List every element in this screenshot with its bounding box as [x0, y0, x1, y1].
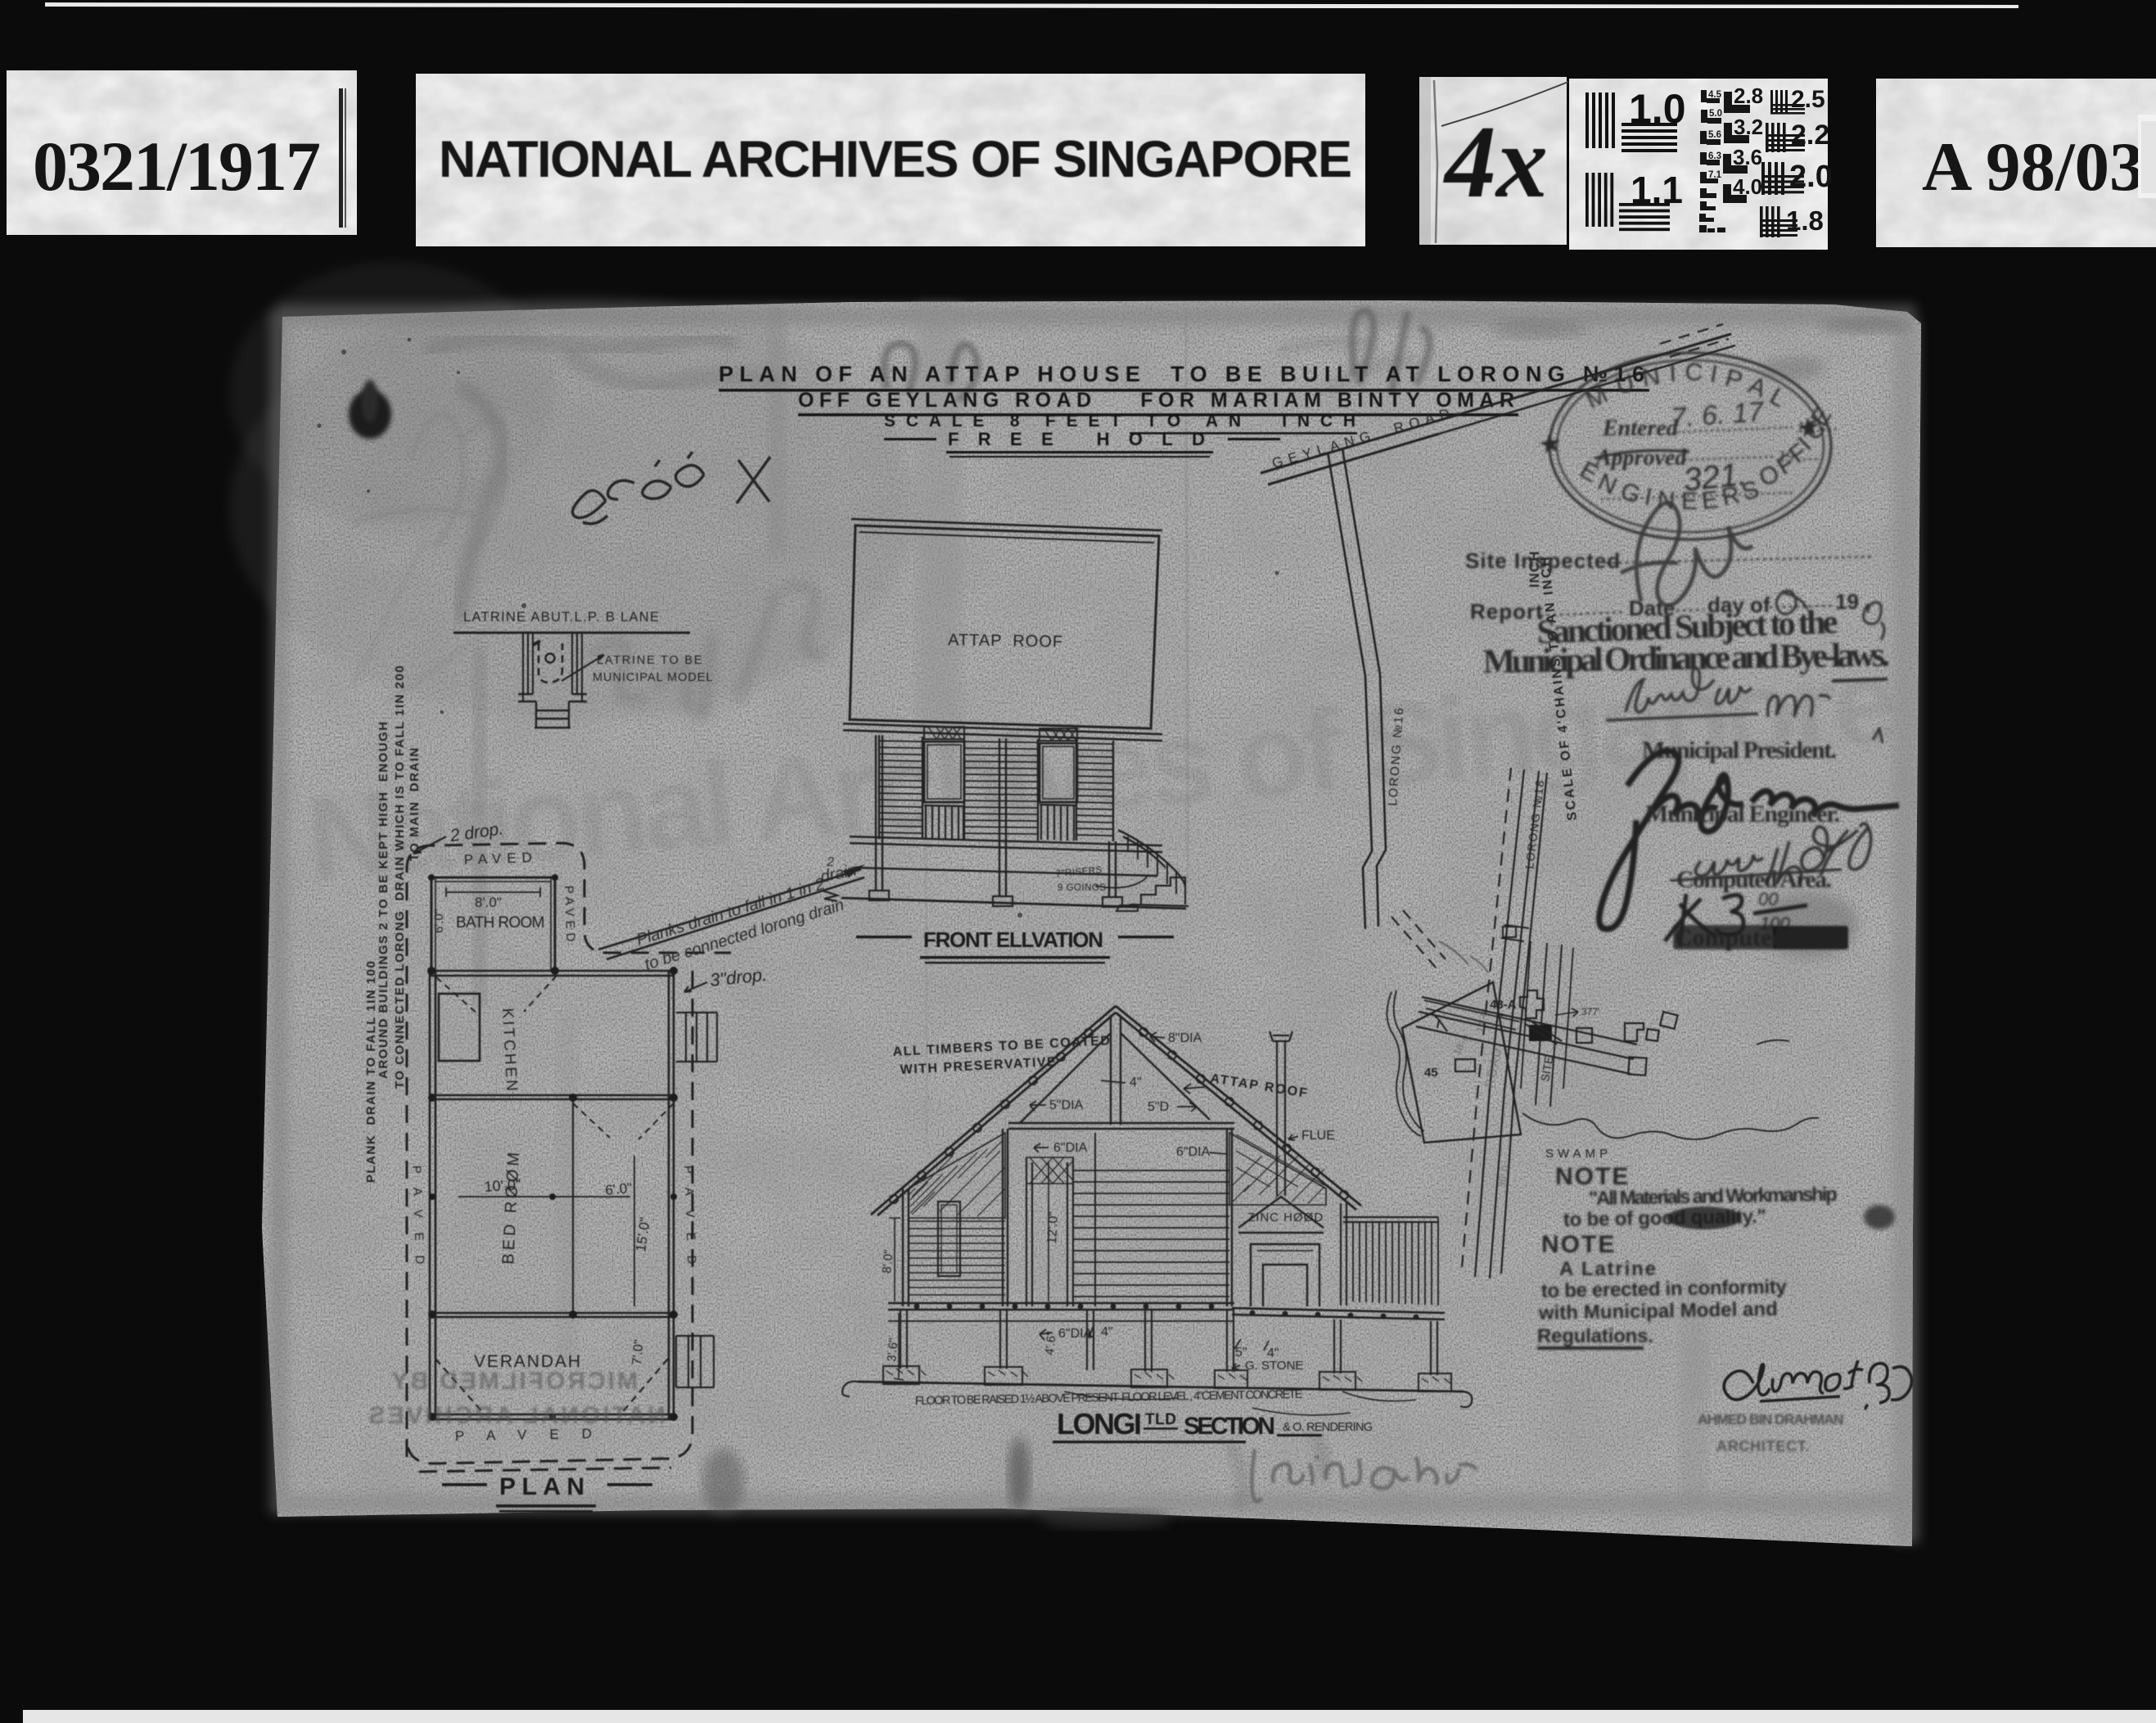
- svg-text:NATIONAL ARCHIVES OF SINGAPORE: NATIONAL ARCHIVES OF SINGAPORE: [439, 131, 1352, 188]
- svg-text:G. STONE: G. STONE: [1245, 1359, 1303, 1373]
- svg-text:4'.6": 4'.6": [1043, 1331, 1058, 1355]
- svg-text:ARCHITECT.: ARCHITECT.: [1716, 1438, 1811, 1455]
- svg-text:1.0: 1.0: [1629, 86, 1686, 132]
- svg-text:Report: Report: [1470, 599, 1544, 624]
- svg-text:SCALE 8 FEET TO AN INCH: SCALE 8 FEET TO AN INCH: [884, 412, 1359, 431]
- svg-text:LONGI: LONGI: [1057, 1407, 1142, 1441]
- svg-text:6'.0": 6'.0": [604, 1180, 633, 1198]
- svg-text:5.6: 5.6: [1708, 130, 1721, 140]
- svg-text:45: 45: [1424, 1066, 1438, 1080]
- svg-text:FREE HOLD: FREE HOLD: [948, 429, 1210, 449]
- svg-text:4x: 4x: [1443, 106, 1548, 219]
- svg-text:Computed: Computed: [1675, 924, 1785, 951]
- svg-text:TO MAIN DRAIN: TO MAIN DRAIN: [408, 746, 422, 861]
- svg-text:BATH ROOM: BATH ROOM: [456, 914, 548, 931]
- svg-text:Entered: Entered: [1602, 416, 1679, 441]
- svg-text:8'.0": 8'.0": [880, 1249, 895, 1274]
- svg-text:4": 4": [1130, 1076, 1142, 1089]
- svg-text:Municipal Ordinance and Bye-la: Municipal Ordinance and Bye-laws.: [1482, 636, 1890, 681]
- svg-text:NATIONAL ARCHIVES: NATIONAL ARCHIVES: [367, 1402, 665, 1429]
- svg-text:4.0: 4.0: [1733, 174, 1762, 199]
- svg-text:3'.6": 3'.6": [885, 1337, 900, 1362]
- svg-text:I: I: [1669, 360, 1677, 387]
- svg-text:2.8: 2.8: [1734, 83, 1763, 108]
- svg-text:4.5: 4.5: [1708, 90, 1722, 100]
- svg-text:43-A: 43-A: [1490, 998, 1517, 1012]
- svg-text:7'.0": 7'.0": [630, 1339, 647, 1365]
- svg-text:OFF GEYLANG ROAD FOR MARIAM: OFF GEYLANG ROAD FOR MARIAM BINTY OMAR: [798, 389, 1518, 412]
- svg-text:FRONT ELLVATION: FRONT ELLVATION: [923, 927, 1105, 952]
- svg-text:3.6: 3.6: [1733, 145, 1762, 169]
- svg-text:PAVED: PAVED: [463, 850, 538, 868]
- svg-text:FLUE: FLUE: [1301, 1129, 1335, 1143]
- svg-text:10'.0": 10'.0": [484, 1176, 521, 1195]
- svg-text:Municipal Engineer.: Municipal Engineer.: [1645, 801, 1840, 828]
- svg-text:LATRINE TO BE: LATRINE TO BE: [597, 654, 703, 667]
- svg-text:C: C: [1685, 359, 1703, 386]
- svg-text:377': 377': [1581, 1006, 1599, 1017]
- svg-text:2: 2: [826, 855, 834, 869]
- svg-text:A 98/030: A 98/030: [1922, 129, 2156, 205]
- svg-text:SWAMP: SWAMP: [1545, 1147, 1612, 1161]
- svg-text:19: 19: [1835, 589, 1859, 614]
- svg-text:6"DIA: 6"DIA: [1058, 1327, 1093, 1341]
- svg-text:2.2: 2.2: [1791, 120, 1829, 151]
- svg-text:7. 6. 17: 7. 6. 17: [1670, 396, 1766, 434]
- svg-text:Regulations.: Regulations.: [1537, 1325, 1653, 1347]
- svg-text:6"DIA: 6"DIA: [1176, 1145, 1211, 1159]
- svg-text:321.: 321.: [1681, 456, 1748, 498]
- svg-text:ATTAP ROOF: ATTAP ROOF: [948, 631, 1067, 652]
- svg-text:MUNICIPAL MODEL: MUNICIPAL MODEL: [593, 671, 714, 684]
- svg-text:6'.0": 6'.0": [432, 909, 446, 933]
- svg-text:Site Inspected: Site Inspected: [1465, 548, 1621, 573]
- svg-text:5"DIA: 5"DIA: [1049, 1098, 1084, 1112]
- svg-text:6.3: 6.3: [1708, 151, 1721, 161]
- svg-text:3.2: 3.2: [1734, 115, 1763, 139]
- svg-text:PAVED: PAVED: [562, 886, 578, 946]
- svg-text:2.5: 2.5: [1791, 86, 1825, 113]
- svg-text:4": 4": [1101, 1325, 1113, 1339]
- svg-text:8'.0": 8'.0": [475, 895, 502, 910]
- svg-text:8"DIA: 8"DIA: [1168, 1031, 1202, 1045]
- svg-text:AROUND BUILDINGS 2 TO BE KEPT: AROUND BUILDINGS 2 TO BE KEPT HIGH ENOUG…: [377, 720, 390, 1079]
- svg-text:5": 5": [1235, 1346, 1247, 1360]
- svg-text:MICROFILMED BY: MICROFILMED BY: [389, 1368, 638, 1395]
- svg-text:SECTION: SECTION: [1184, 1413, 1275, 1440]
- svg-text:PLAN OF AN ATTAP HOUSE TO BE: PLAN OF AN ATTAP HOUSE TO BE BUILT AT LO…: [719, 362, 1649, 386]
- svg-text:2.0: 2.0: [1789, 160, 1833, 194]
- svg-text:0321/1917: 0321/1917: [33, 127, 321, 205]
- svg-text:5"D: 5"D: [1148, 1100, 1169, 1114]
- svg-text:INCH: INCH: [1527, 550, 1542, 588]
- svg-text:with Municipal Model and: with Municipal Model and: [1538, 1298, 1778, 1324]
- svg-text:5.0: 5.0: [1709, 109, 1722, 119]
- svg-text:1.1: 1.1: [1631, 169, 1683, 211]
- svg-text:ZINC HØØD: ZINC HØØD: [1247, 1211, 1324, 1225]
- svg-text:19: 19: [1778, 448, 1794, 466]
- svg-text:N: N: [1656, 486, 1676, 515]
- svg-text:00: 00: [1758, 889, 1779, 909]
- svg-text:NOTE: NOTE: [1555, 1163, 1630, 1190]
- svg-text:7.1: 7.1: [1708, 170, 1722, 180]
- svg-text:TO CONNECTED LORONG DRAIN WHI: TO CONNECTED LORONG DRAIN WHICH IS TO FA…: [393, 665, 407, 1089]
- svg-text:Approved: Approved: [1594, 445, 1687, 471]
- svg-text:12'.0": 12'.0": [1045, 1211, 1061, 1244]
- svg-text:A Latrine: A Latrine: [1559, 1258, 1656, 1280]
- svg-text:PLAN: PLAN: [499, 1473, 591, 1500]
- svg-text:19: 19: [1797, 418, 1813, 436]
- svg-text:1.8: 1.8: [1786, 205, 1824, 236]
- svg-text:AHMED BIN DRAHMAN: AHMED BIN DRAHMAN: [1698, 1411, 1845, 1428]
- svg-text:NOTE: NOTE: [1541, 1231, 1616, 1258]
- svg-text:TLD: TLD: [1145, 1411, 1176, 1428]
- svg-text:& O. RENDERING: & O. RENDERING: [1283, 1421, 1373, 1434]
- svg-text:6"DIA: 6"DIA: [1053, 1141, 1088, 1155]
- svg-text:9 GOINGS: 9 GOINGS: [1058, 883, 1107, 893]
- svg-text:LATRINE ABUT.L.P. B LANE: LATRINE ABUT.L.P. B LANE: [463, 610, 661, 625]
